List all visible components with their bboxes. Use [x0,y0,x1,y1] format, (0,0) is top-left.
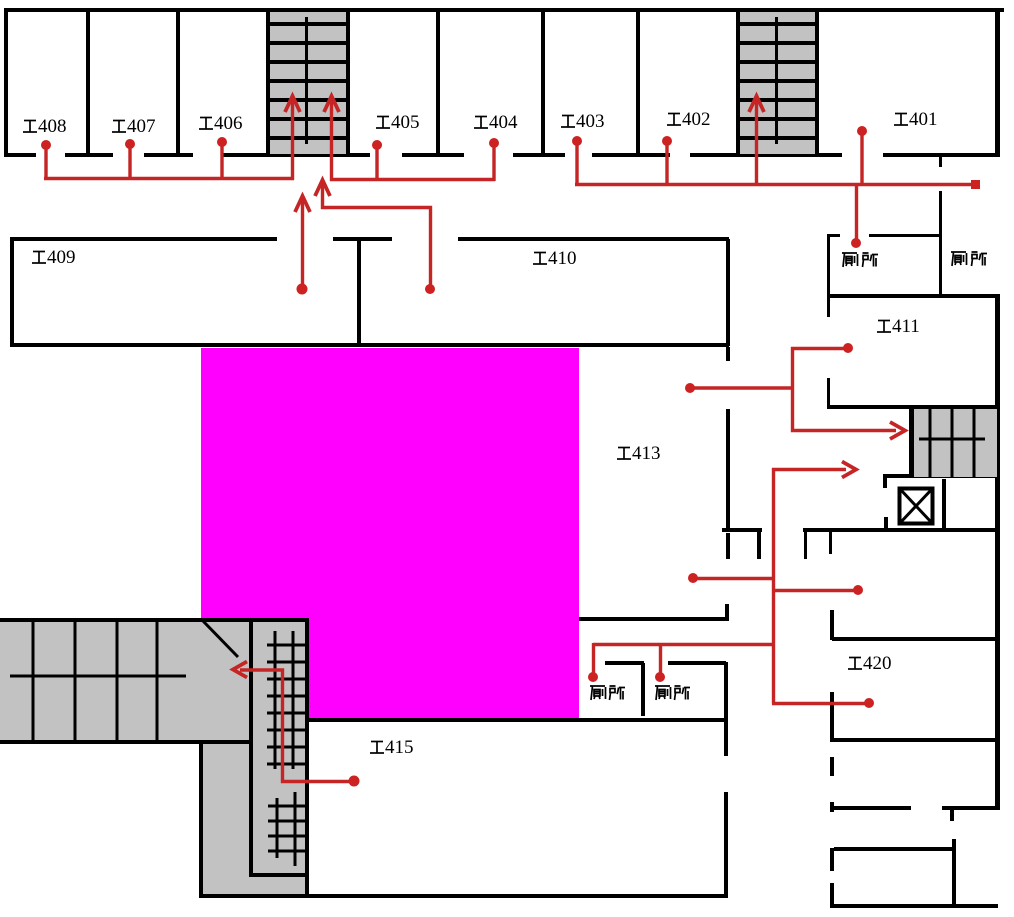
svg-text:415: 415 [385,737,414,758]
svg-text:404: 404 [489,112,518,133]
svg-text:413: 413 [632,443,661,464]
svg-text:409: 409 [47,247,76,268]
svg-text:420: 420 [863,653,892,674]
svg-text:402: 402 [682,109,711,130]
svg-text:405: 405 [391,112,420,133]
svg-text:407: 407 [127,116,156,137]
svg-text:406: 406 [214,113,243,134]
svg-text:411: 411 [892,316,920,337]
svg-text:410: 410 [548,248,577,269]
svg-text:401: 401 [909,109,938,130]
svg-text:403: 403 [576,111,605,132]
svg-text:408: 408 [38,116,67,137]
